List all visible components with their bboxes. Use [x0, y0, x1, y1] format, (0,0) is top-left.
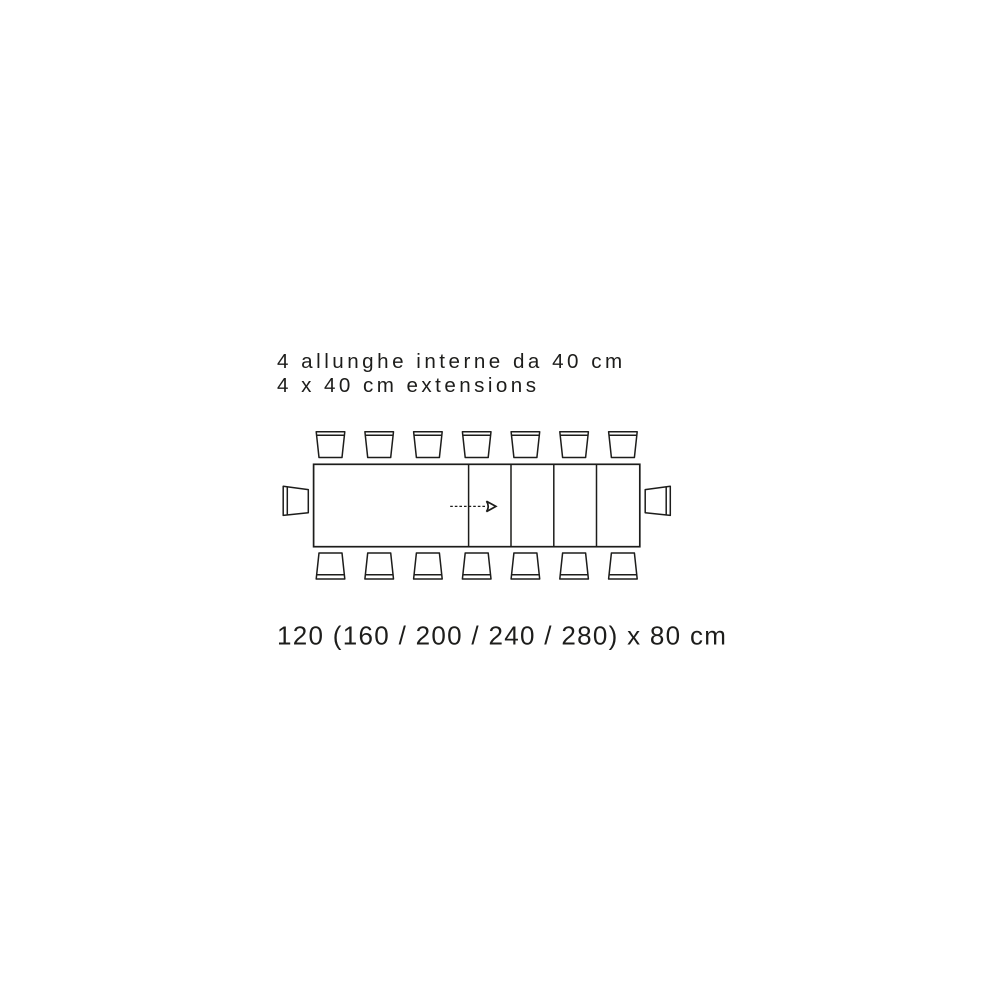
svg-text:4 allunghe interne da 40 cm: 4 allunghe interne da 40 cm [277, 350, 626, 373]
svg-text:4 x 40 cm extensions: 4 x 40 cm extensions [277, 374, 539, 397]
svg-text:120 (160 / 200 / 240 / 280) x: 120 (160 / 200 / 240 / 280) x 80 cm [277, 621, 727, 651]
